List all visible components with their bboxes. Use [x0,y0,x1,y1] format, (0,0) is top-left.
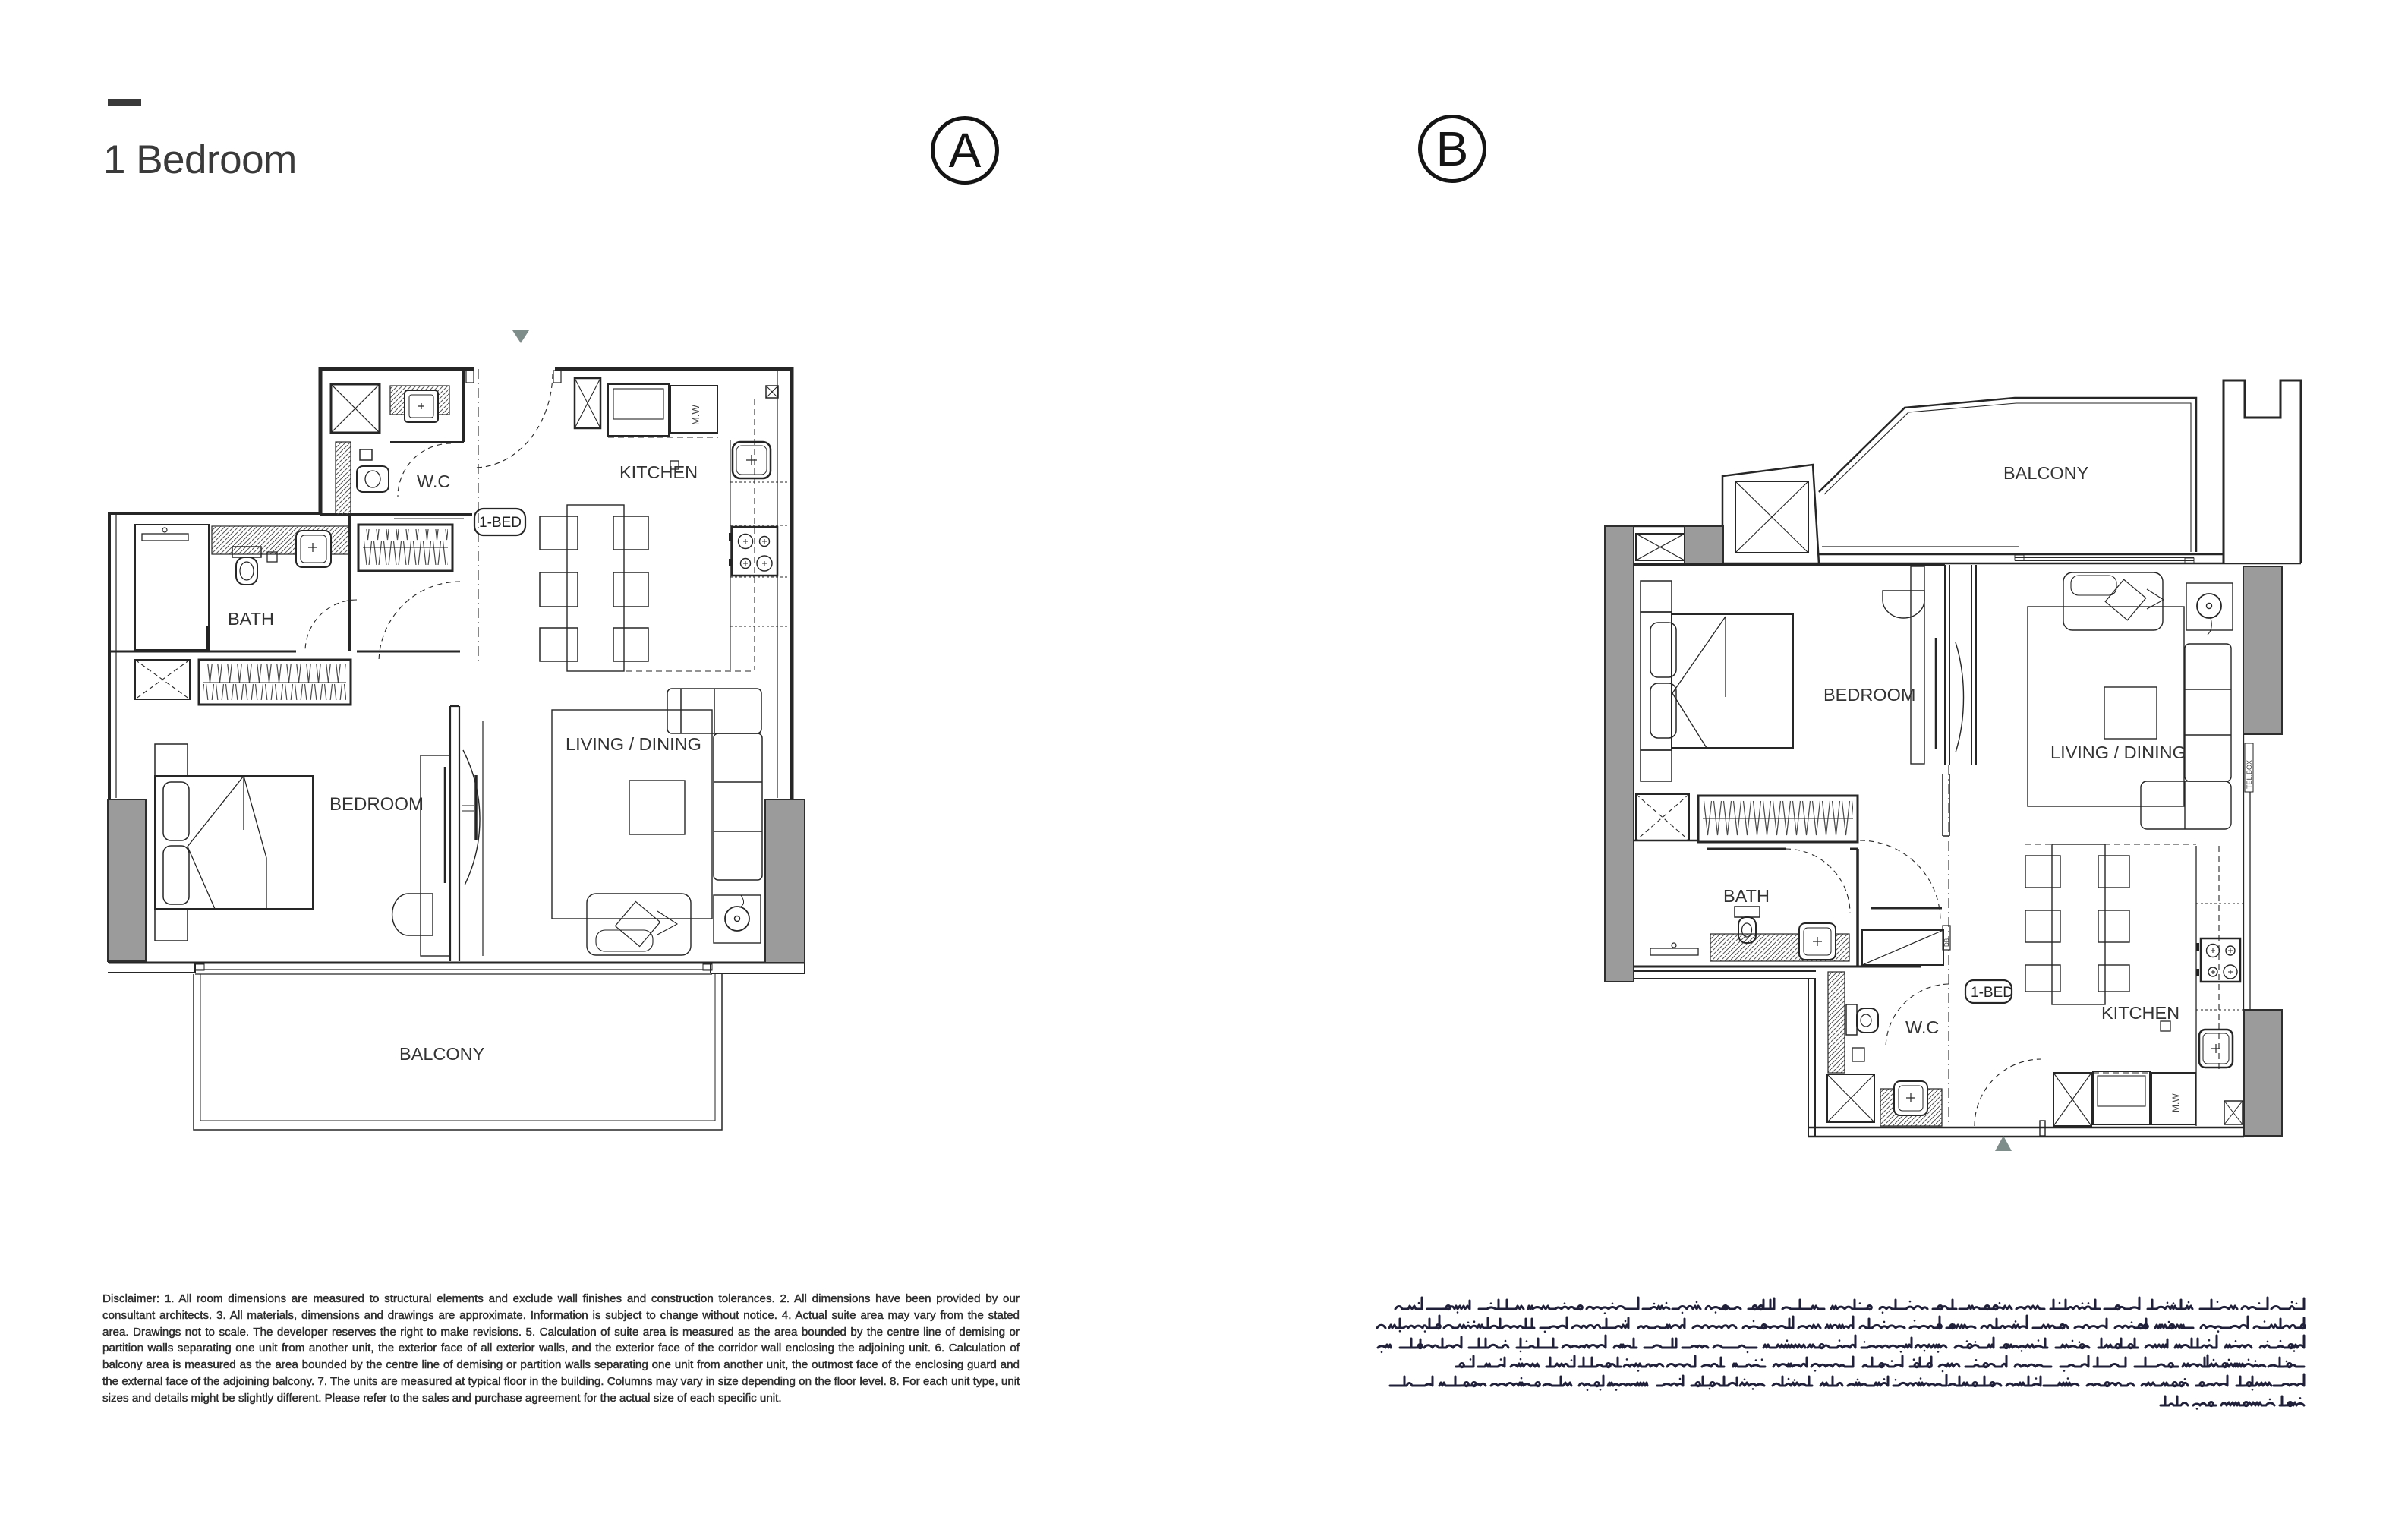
svg-text:BALCONY: BALCONY [2003,463,2089,483]
svg-text:BATH: BATH [1723,886,1770,906]
svg-text:BEDROOM: BEDROOM [1823,685,1915,705]
svg-text:BALCONY: BALCONY [399,1044,485,1064]
svg-text:M.W: M.W [690,405,701,425]
svg-text:W.C: W.C [417,471,450,491]
svg-text:BATH: BATH [228,609,274,629]
svg-text:KITCHEN: KITCHEN [2101,1003,2179,1023]
svg-text:LIVING / DINING: LIVING / DINING [566,734,701,754]
svg-text:LIVING / DINING: LIVING / DINING [2050,743,2186,762]
svg-text:BEDROOM: BEDROOM [329,794,424,815]
svg-text:M.W: M.W [2170,1093,2181,1112]
svg-text:1-BED: 1-BED [1971,985,2013,1001]
svg-text:DB: DB [1943,938,1950,947]
svg-text:1-BED: 1-BED [479,515,522,531]
svg-text:TEL.BOX: TEL.BOX [2246,760,2253,789]
svg-text:KITCHEN: KITCHEN [619,462,698,482]
svg-text:W.C: W.C [1905,1017,1939,1037]
